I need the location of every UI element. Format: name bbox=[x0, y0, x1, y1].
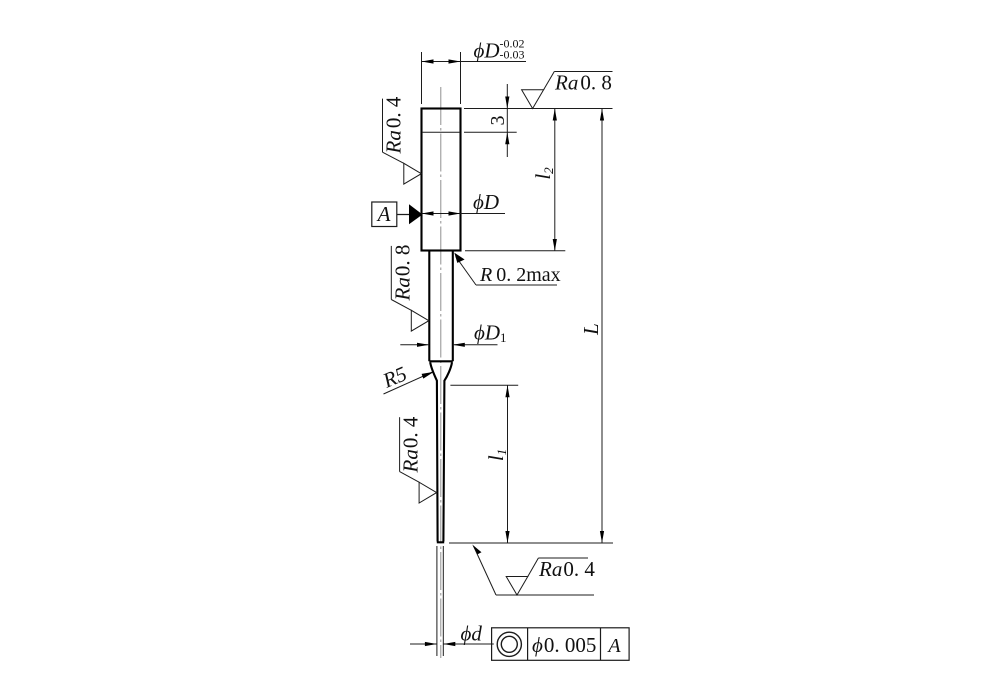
svg-text:Ra0. 8: Ra0. 8 bbox=[554, 71, 612, 95]
svg-text:ϕD: ϕD bbox=[473, 190, 499, 214]
svg-text:ϕ0. 005: ϕ0. 005 bbox=[532, 633, 596, 657]
svg-text:A: A bbox=[376, 202, 391, 226]
svg-text:R0. 2max: R0. 2max bbox=[479, 264, 561, 286]
svg-text:Ra0. 4: Ra0. 4 bbox=[399, 416, 423, 473]
svg-text:ϕd: ϕd bbox=[461, 622, 483, 646]
svg-text:3: 3 bbox=[487, 116, 509, 126]
svg-text:-0.03: -0.03 bbox=[500, 48, 525, 62]
svg-text:L: L bbox=[579, 323, 603, 336]
svg-text:Ra0. 8: Ra0. 8 bbox=[391, 245, 415, 302]
svg-text:Ra0. 4: Ra0. 4 bbox=[538, 557, 595, 581]
svg-text:Ra0. 4: Ra0. 4 bbox=[382, 96, 406, 154]
svg-text:A: A bbox=[606, 635, 621, 657]
svg-text:ϕD: ϕD bbox=[474, 39, 500, 63]
